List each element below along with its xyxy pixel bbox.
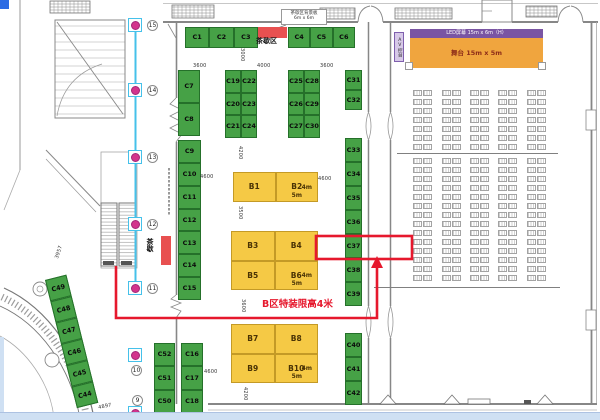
elevator-marker-13 [128, 150, 142, 164]
annotation-overlay [0, 0, 600, 420]
marker-number-11: 11 [147, 283, 158, 294]
elevator-marker-12 [128, 217, 142, 231]
elevator-marker-14 [128, 83, 142, 97]
marker-number-15: 15 [147, 20, 158, 31]
window-edge-bottom [0, 412, 600, 420]
marker-dot-icon [131, 284, 140, 293]
marker-dot-icon [131, 351, 140, 360]
highlight-rect-c37 [316, 236, 412, 259]
marker-number-13: 13 [147, 152, 158, 163]
marker-number-12: 12 [147, 219, 158, 230]
window-edge-left [0, 337, 4, 420]
marker-dot-icon [131, 86, 140, 95]
marker-number-9: 9 [132, 395, 143, 406]
marker-dot-icon [131, 21, 140, 30]
elevator-marker-10 [128, 348, 142, 362]
marker-number-14: 14 [147, 85, 158, 96]
marker-number-10: 10 [131, 365, 142, 376]
window-corner [0, 0, 9, 9]
elevator-marker-15 [128, 18, 142, 32]
marker-dot-icon [131, 153, 140, 162]
elevator-marker-11 [128, 281, 142, 295]
floor-plan: LED屏幕 15m x 6m（H） 舞台 15m x 5m AV控台 茶歇区背景… [0, 0, 600, 420]
marker-dot-icon [131, 220, 140, 229]
